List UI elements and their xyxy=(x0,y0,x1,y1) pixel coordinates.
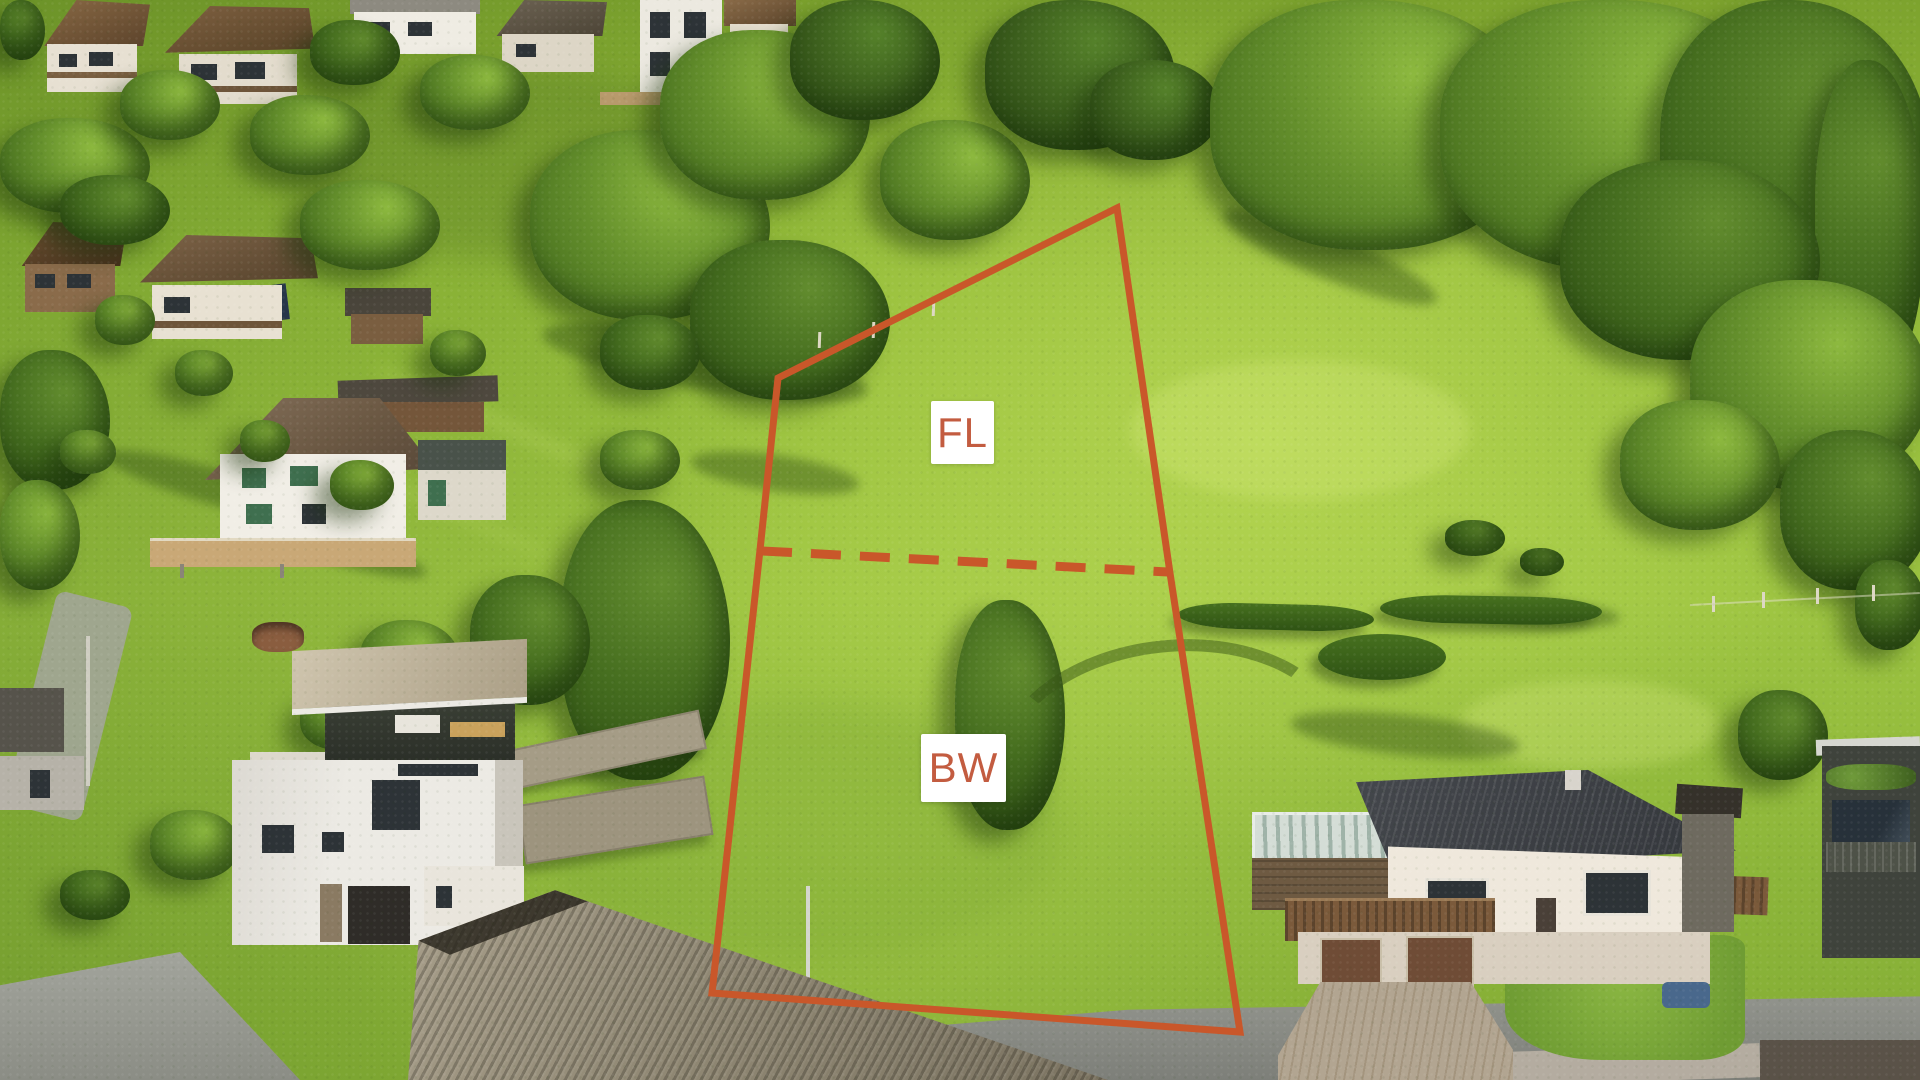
aerial-photo-scene: FL BW xyxy=(0,0,1920,1080)
property-boundary-overlay xyxy=(0,0,1920,1080)
boundary-polygon xyxy=(712,208,1240,1032)
parcel-divider-line xyxy=(762,551,1168,572)
parcel-label-fl: FL xyxy=(931,401,994,464)
parcel-label-bw: BW xyxy=(921,734,1006,802)
